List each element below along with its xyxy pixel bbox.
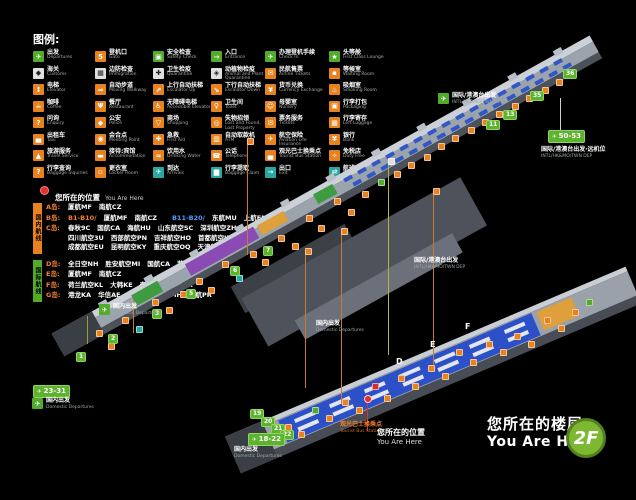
legend-item: ▄观光巴士换乘点Tourist Bus Station [265,149,329,166]
first-aid-icon: ✚ [153,134,164,145]
legend-item: ◈动植物检疫Animal and Plant Quarantine [211,67,265,84]
toilet-icon [196,278,203,285]
airline-name: 吉祥航空HO [154,234,191,242]
map-you-are-here-dot [364,395,372,403]
legend-item: ✈出发Departures [33,50,95,67]
legend-label-en: Accommodation [109,155,145,160]
legend-item: ☺母婴室Nursery [265,100,329,117]
legend-item: ⇗上行自动扶梯Escalator Up [153,83,211,100]
restaurant-icon [394,171,401,178]
departures-icon: ✈ [32,398,43,409]
airport-floor-map-2f: 1235671113353619202122✈23-31✈18-22✈50-53… [0,0,636,500]
tickets-icon: ✉ [265,117,276,128]
legend-item: ¥货币兑换Currency Exchange [265,83,329,100]
restaurant-icon [496,111,503,118]
baggage-inquiries-icon: ? [33,167,44,178]
checkin-island-letter-D: D [396,357,403,366]
airline-name: 国航CA [97,224,120,232]
gate-badge-1: 1 [76,352,86,362]
legend-label-en: Quarantine [167,73,192,78]
tourist-bus-station-label: 观光巴士换乘点Tourist Bus Station [340,422,382,434]
airline-name: 山东航空SC [158,224,193,232]
currency-exchange-icon: ¥ [265,84,276,95]
legend-item: ▥自动取款机ATM [211,133,265,150]
airline-name: 南航CZ [99,270,121,278]
legend-item: ◆公安Police [95,116,153,133]
waiting-room-icon: ▪ [329,68,340,79]
island-label: C岛: [46,224,68,253]
shopping-icon [208,287,215,294]
leader-line [87,316,88,344]
atm-icon [398,375,405,382]
legend-item: ≈饮用水Drinking Water [153,149,211,166]
domestic-routes-tag: 国内航线 [33,203,42,254]
domestic-departures-label: 国内出发Domestic Departures [46,398,94,410]
legend-label-en: Enquiry [47,122,64,127]
enquiry-icon [262,259,269,266]
quarantine-icon: ✚ [153,68,164,79]
airline-name: 厦航MF [104,214,128,222]
restaurant-icon: Ψ [95,101,106,112]
elevator-icon: ↕ [33,84,44,95]
toilet-icon [486,341,493,348]
toilet-icon [348,209,355,216]
legend-label-en: Gate [109,56,127,61]
legend-label-en: Animal and Plant Quarantine [225,73,265,83]
shopping-icon [292,243,299,250]
legend-label-en: Aviation Life Insurance [279,139,329,149]
customs-icon: ◆ [33,68,44,79]
airline-name: 全日空NH [68,260,98,268]
island-label: F岛: [46,281,68,291]
coffee-icon [433,188,440,195]
gate-badge-5: 5 [186,289,196,299]
island-label: A岛: [46,203,68,213]
legend-item: →入口Entrance [211,50,265,67]
legend-item: ◉会合点Meeting Point [95,133,153,150]
legend-item: ✉票务服务Tickets [265,116,329,133]
shopping-icon [438,143,445,150]
check-in-icon [312,407,319,414]
taxi-icon: ▄ [33,134,44,145]
legend-item: ▦行李寄存Left Luggage [329,116,405,133]
arrivals-icon [236,275,243,282]
legend-item: ⇒自动步道Moving Walkway [95,83,153,100]
legend-column: 5登机口Gate▦边防检查Immigration⇒自动步道Moving Walk… [95,50,153,182]
legend-label-en: Tickets [279,122,303,127]
shopping-icon [341,228,348,235]
island-label: B岛: [46,214,68,224]
map-you-are-here-label: 您所在的位置 You Are Here [377,428,425,446]
legend-label-en: Drinking Water [167,155,201,160]
legend-item: ☕咖啡Coffee [33,100,95,117]
legend-column: ✈办理登机手续Check In✉民航售票Airline Tickets¥货币兑换… [265,50,329,182]
legend-label-en: Safety Check [167,56,197,61]
airline-name: 胜安航空MI [105,260,140,268]
nursery-icon: ☺ [265,101,276,112]
legend-label-en: Immigration [109,73,136,78]
animal-plant-quarantine-icon: ◈ [211,68,222,79]
legend-label-en: Restaurant [109,106,134,111]
airline-name: 四川航空3U [68,234,104,242]
airline-name: 厦航MF [68,203,92,211]
legend-label-en: Police [109,122,122,127]
leader-line [341,233,342,403]
checkin-island-letter-F: F [465,322,470,331]
toilet-icon [428,365,435,372]
you-are-here-legend: 您所在的位置 You Are Here [40,186,144,204]
legend-item: →出口Exit [265,166,329,183]
legend-item: ?行李查询Baggage Inquiries [33,166,95,183]
baggage-claim-icon: ▆ [211,167,222,178]
exit-icon: → [265,167,276,178]
locker-room-icon: ▫ [95,167,106,178]
leader-line [305,253,306,388]
left-luggage-icon: ▦ [329,117,340,128]
legend-label-en: Entrance [225,56,245,61]
legend-item: ▄出租车Taxi [33,133,95,150]
floor-2f-badge: 2F [566,418,606,458]
legend-label-en: Airline Tickets [279,73,310,78]
domestic-departures-label: 国内出发Domestic Departures [234,447,282,459]
shopping-icon [122,317,129,324]
gate-range-badge-50-53: ✈50-53 [548,130,585,143]
leader-line [247,143,248,255]
airline-name: 深圳航空ZH [200,224,236,232]
safety-check-icon [378,179,385,186]
tourist-bus-icon: ▄ [265,150,276,161]
gate-badge-11: 11 [486,120,500,130]
checkin-island-letter-E: E [430,340,435,349]
shopping-icon [470,359,477,366]
legend-label-en: Smoking Room [343,89,377,94]
legend-item: ▆行李提取Baggage Claim [211,166,265,183]
legend-item: ⇘下行自动扶梯Escalator Down [211,83,265,100]
travel-service-icon: ▲ [33,150,44,161]
legend-item: 5登机口Gate [95,50,153,67]
legend-column: ✈出发Departures◆海关Customs↕电梯Elevator☕咖啡Cof… [33,50,95,182]
immigration-icon: ▦ [95,68,106,79]
airline-name: 昆明航空KY [111,243,147,251]
escalator-up-icon [334,198,341,205]
legend-label-en: Travel Service [47,155,78,160]
gate-range-badge-18-22: ✈18-22 [248,433,285,446]
legend-label-en: Locker Room [109,172,138,177]
smoking-room-icon: ♨ [329,84,340,95]
left-luggage-icon [456,349,463,356]
accessible-elevator-icon: ♿ [153,101,164,112]
legend-label-en: Left Luggage [343,122,372,127]
restaurant-icon [247,138,254,145]
atm-icon: ▥ [211,134,222,145]
legend-label-en: Escalator Up [167,89,203,94]
airline-name: 港龙KA [68,291,91,299]
airline-name: B1-B10/ [68,214,97,222]
legend-item: ▣安全检查Safety Check [153,50,211,67]
restaurant-icon [108,343,115,350]
legend-item: ▪等候室Waiting Room [329,67,405,84]
gate-badge-2: 2 [108,334,118,344]
shopping-icon [362,191,369,198]
legend-label-en: Packaging [343,106,367,111]
legend-label-en: Check In [279,56,315,61]
first-class-lounge-icon: ★ [329,51,340,62]
police-icon: ◆ [95,117,106,128]
airline-name: 南航CZ [134,214,156,222]
entrance-icon [586,299,593,306]
gate-badge-36: 36 [563,69,577,79]
domestic-departures-label: 国内出发Domestic Departures [113,304,161,316]
toilet-icon [424,154,431,161]
legend-label-en: Waiting Room [343,73,374,78]
airline-name: 西部航空PN [111,234,147,242]
escalator-down-icon: ⇘ [211,84,222,95]
legend-label-en: Taxi [47,139,65,144]
legend-label-en: Elevator [47,89,66,94]
legend-label-en: Coffee [47,106,62,111]
escalator-up-icon [468,127,475,134]
airline-name: 大韩KE [110,281,132,289]
legend-item: ▲旅游服务Travel Service [33,149,95,166]
currency-exchange-icon [326,415,333,422]
legend-item: ?问询Enquiry [33,116,95,133]
entrance-icon: → [211,51,222,62]
toilet-icon [356,407,363,414]
legend-item: ✉民航售票Airline Tickets [265,67,329,84]
legend-item: ◎失物招领Lost and Found, Lost Property [211,116,265,133]
telephone-icon: ☎ [211,150,222,161]
escalator-up-icon [572,309,579,316]
legend-item: ♨吸烟室Smoking Room [329,83,405,100]
intl-remote-stand-label: 国际/港澳台出发·远机位INTL/HK&MO/TWN DEP [541,147,605,159]
lost-and-found-icon: ◎ [211,117,222,128]
departures-icon: ✈ [99,304,110,315]
toilet-icon [305,248,312,255]
restaurant-icon [306,215,313,222]
drinking-water-icon: ≈ [153,150,164,161]
restaurant-icon [514,333,521,340]
accommodation-icon: ▬ [95,150,106,161]
arrivals-icon: ✈ [153,167,164,178]
legend-label-en: Moving Walkway [109,89,147,94]
gate-badge-7: 7 [263,246,273,256]
legend-label-en: Escalator Down [225,89,261,94]
restaurant-icon [342,399,349,406]
legend-label-en: Lost and Found, Lost Property [225,122,265,132]
legend-item: Ψ餐厅Restaurant [95,100,153,117]
toilet-icon: ♀ [211,101,222,112]
moving-walkway-icon: ⇒ [95,84,106,95]
coffee-icon [166,307,173,314]
intl-departures-label: 国际/港澳台出发INTL/HK&MO/TWN DEP [452,93,503,105]
telephone-icon [500,349,507,356]
legend-item: ✈办理登机手续Check In [265,50,329,67]
legend-title: 图例: [33,31,59,47]
legend-label-en: Duty Free [343,155,365,160]
map-you-are-here-cn: 您所在的位置 [377,428,425,438]
legend-item: ▫更衣室Locker Room [95,166,153,183]
restaurant-icon [556,79,563,86]
restaurant-icon [442,373,449,380]
meeting-point-icon: ◉ [95,134,106,145]
shopping-icon [384,395,391,402]
map-you-are-here-en: You Are Here [377,438,425,446]
departures-icon: ✈ [33,51,44,62]
airline-tickets-icon: ✉ [265,68,276,79]
duty-free-icon: ✧ [329,150,340,161]
international-routes-tag: 国际航线 [33,260,42,302]
island-label: D岛: [46,260,68,270]
safety-check-icon: ▣ [153,51,164,62]
quarantine-icon [388,158,395,165]
toilet-icon [298,431,305,438]
legend-label-en: Nursery [279,106,297,111]
legend-label-en: Accessible Elevator [167,106,211,111]
intl-departures-label: 国际/港澳台出发INTL/HK&MO/TWN DEP [414,258,465,270]
legend-label-en: Meeting Point [109,139,140,144]
legend-item: ✚急救First Aid [153,133,211,150]
legend-item: ↕电梯Elevator [33,83,95,100]
airline-name: 成都航空EU [68,243,104,251]
domestic-departures-label: 国内出发Domestic Departures [316,321,364,333]
legend-item: ☎公话Telephone [211,149,265,166]
aviation-insurance-icon: ✈ [265,134,276,145]
legend-label-en: First Aid [167,139,185,144]
leader-line [388,163,389,355]
legend-grid: ✈出发Departures◆海关Customs↕电梯Elevator☕咖啡Cof… [33,50,405,182]
legend-item: ◆海关Customs [33,67,95,84]
toilet-icon [96,330,103,337]
island-label: G岛: [46,291,68,301]
airline-name: 春秋9C [68,224,90,232]
shopping-icon [512,103,519,110]
legend-label-en: Customs [47,73,67,78]
legend-label-en: First Class Lounge [343,56,384,61]
legend-label-en: Currency Exchange [279,89,323,94]
airline-name: 重庆航空OQ [153,243,190,251]
escalator-up-icon [250,251,257,258]
legend-label-en: Exit [279,172,291,177]
bank-icon: ¥ [329,134,340,145]
legend-item: ▽商场Shopping [153,116,211,133]
check-in-icon: ✈ [265,51,276,62]
toilet-icon [544,317,551,324]
legend-label-en: Arrivals [167,172,184,177]
coffee-icon: ☕ [33,101,44,112]
legend-item: ▦边防检查Immigration [95,67,153,84]
legend-label-en: Baggage Claim [225,172,259,177]
legend-label-en: Telephone [225,155,248,160]
legend-label-en: Baggage Inquiries [47,172,88,177]
island-label: E岛: [46,270,68,280]
coffee-icon [452,135,459,142]
restaurant-icon [222,261,229,268]
legend-label-en: Departures [47,56,72,61]
legend-item: ♿无障碍电梯Accessible Elevator [153,100,211,117]
legend-item: ▬接待:宾馆Accommodation [95,149,153,166]
baggage-claim-icon [136,326,143,333]
coffee-icon [318,225,325,232]
airline-name: 东航MU [212,214,237,222]
packaging-icon: ▣ [329,101,340,112]
escalator-up-icon: ⇗ [153,84,164,95]
legend-label-en: Bank [343,139,355,144]
departures-icon: ✈ [438,93,449,104]
toilet-icon [278,235,285,242]
you-are-here-cn: 您所在的位置 [55,193,100,202]
legend-item: ✈航空保险Aviation Life Insurance [265,133,329,150]
legend-item: ✚卫生检疫Quarantine [153,67,211,84]
airline-name: 海航HU [127,224,151,232]
shopping-icon: ▽ [153,117,164,128]
gate-badge-6: 6 [230,266,240,276]
first-aid-icon [372,383,379,390]
shopping-icon [558,325,565,332]
airline-name: 国航CA [147,260,170,268]
airline-name: 厦航MF [68,270,92,278]
you-are-here-en: You Are Here [105,195,144,202]
legend-label-en: Shopping [167,122,188,127]
airline-island-row: A岛:厦航MF南航CZ [46,203,293,213]
airline-name: B11-B20/ [172,214,205,222]
gate-badge-13: 13 [503,110,517,120]
legend-item: ▣行李打包Packaging [329,100,405,117]
airline-name: 荷兰航空KL [68,281,103,289]
legend-column: ▣安全检查Safety Check✚卫生检疫Quarantine⇗上行自动扶梯E… [153,50,211,182]
enquiry-icon: ? [33,117,44,128]
leader-line [560,98,561,130]
legend-item: ♀卫生间Toilet [211,100,265,117]
airline-name: 南航CZ [99,203,121,211]
gate-range-badge-23-31: ✈23-31 [33,385,70,398]
legend-item: ✈到达Arrivals [153,166,211,183]
you-are-here-dot-icon [40,186,49,195]
legend-label-en: Tourist Bus Station [279,155,321,160]
gate-icon: 5 [95,51,106,62]
gate-badge-35: 35 [530,91,544,101]
legend-column: →入口Entrance◈动植物检疫Animal and Plant Quaran… [211,50,265,182]
coffee-icon [412,383,419,390]
coffee-icon [528,341,535,348]
legend-item: ★头等舱First Class Lounge [329,50,405,67]
atm-icon [408,162,415,169]
legend-label-en: Toilet [225,106,243,111]
